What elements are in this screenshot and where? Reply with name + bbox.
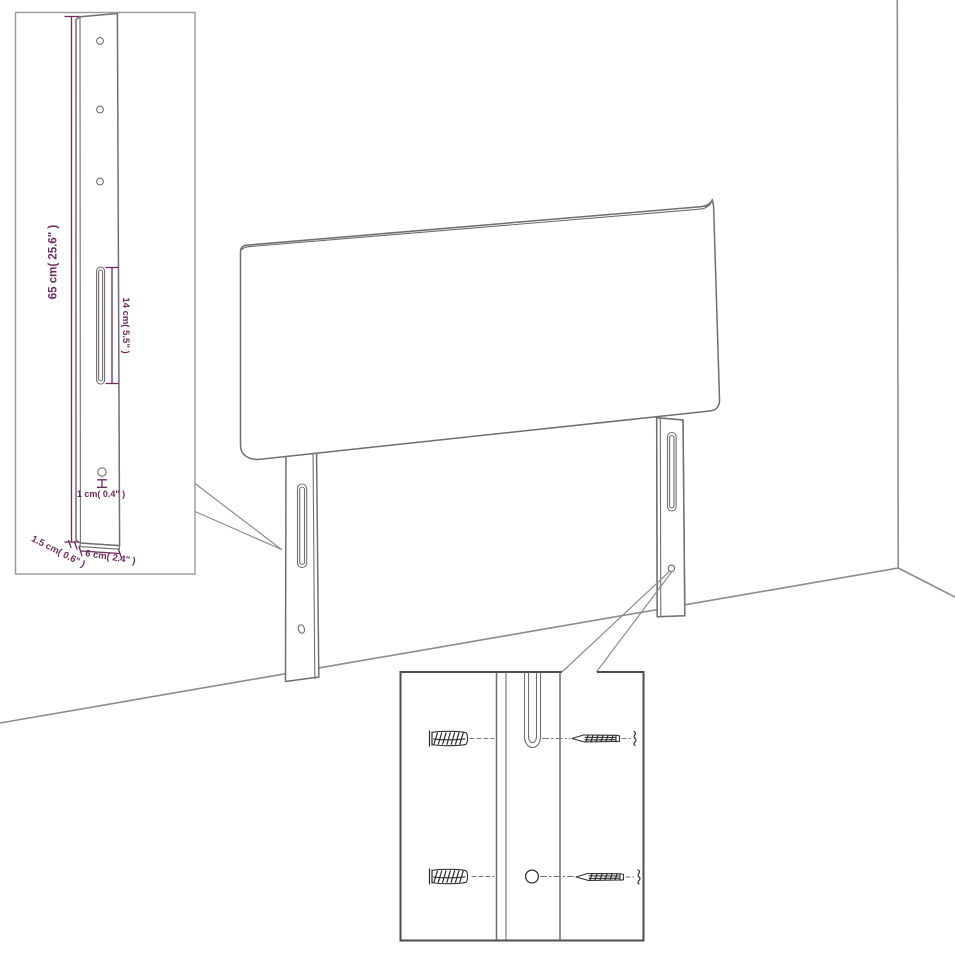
dim-hole-label: 1 cm( 0.4" ) xyxy=(77,489,125,499)
mounting-detail-inset xyxy=(401,672,644,941)
headboard-dimension-diagram: 65 cm( 25.6" ) 14 cm( 5.5" ) 1 cm( 0.4" … xyxy=(0,0,955,955)
headboard-panel xyxy=(241,200,720,460)
callout-lines-right xyxy=(563,571,673,671)
bracket-drawing xyxy=(76,14,120,550)
callout-lines-left xyxy=(195,484,282,550)
left-leg xyxy=(286,447,319,682)
dim-slot-label: 14 cm( 5.5" ) xyxy=(120,297,131,353)
diagram-canvas: 65 cm( 25.6" ) 14 cm( 5.5" ) 1 cm( 0.4" … xyxy=(0,0,955,955)
dim-height-label: 65 cm( 25.6" ) xyxy=(48,225,60,300)
bracket-detail-inset: 65 cm( 25.6" ) 14 cm( 5.5" ) 1 cm( 0.4" … xyxy=(16,13,196,575)
